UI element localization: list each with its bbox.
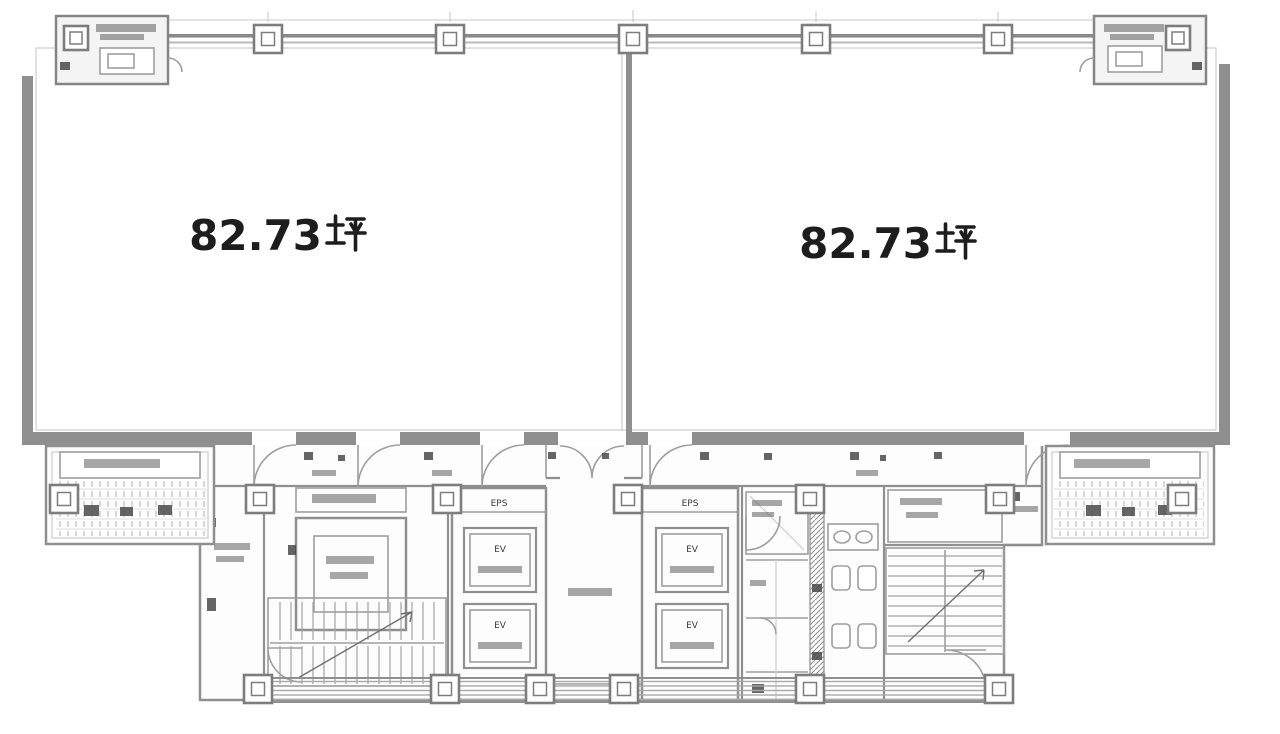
- eps-label: EPS: [491, 499, 508, 509]
- illegible-text-mark: [100, 34, 144, 40]
- illegible-text-mark: [312, 494, 376, 503]
- ev-label: EV: [494, 621, 507, 631]
- column-marker: [1168, 485, 1196, 513]
- right-wall: [1219, 64, 1230, 445]
- ev-label: EV: [494, 545, 507, 555]
- wall-step-arc: [1080, 58, 1094, 72]
- pipe-shaft: [810, 486, 824, 700]
- top-left-machine-room: [56, 16, 182, 84]
- balcony-left: [46, 446, 214, 544]
- eps-label: EPS: [682, 499, 699, 509]
- column-marker: [984, 25, 1012, 53]
- column-marker: [64, 26, 88, 50]
- floor-plan-drawing: 82.73 82.73: [0, 0, 1280, 734]
- illegible-text-mark: [752, 500, 782, 506]
- illegible-text-mark: [752, 512, 774, 517]
- sink-counter: [828, 524, 878, 550]
- illegible-text-mark: [1104, 24, 1164, 32]
- illegible-text-mark: [326, 556, 374, 564]
- illegible-text-mark: [670, 642, 714, 649]
- illegible-text-mark: [84, 459, 160, 468]
- ev-label: EV: [686, 621, 699, 631]
- column-marker: [244, 675, 272, 703]
- ev-label: EV: [686, 545, 699, 555]
- toilet-fixture: [832, 566, 850, 590]
- column-marker: [433, 485, 461, 513]
- column-marker: [986, 485, 1014, 513]
- office-room-left: 82.73: [189, 211, 365, 260]
- illegible-text-mark: [1110, 34, 1154, 40]
- toilet-fixture: [832, 624, 850, 648]
- outdoor-unit: [1122, 507, 1135, 516]
- outdoor-unit: [120, 507, 133, 516]
- toilet-fixture: [858, 624, 876, 648]
- column-marker: [796, 485, 824, 513]
- column-marker: [614, 485, 642, 513]
- left-wall: [22, 76, 33, 445]
- room-area-label: 82.73: [189, 211, 322, 260]
- balcony-right: [1046, 446, 1214, 544]
- column-marker: [50, 485, 78, 513]
- illegible-text-mark: [1012, 506, 1038, 512]
- outdoor-unit: [158, 505, 172, 515]
- tenant-divider-wall: [626, 44, 632, 432]
- floor-plan-page: 82.73 82.73: [0, 0, 1280, 734]
- column-marker: [796, 675, 824, 703]
- illegible-text-mark: [330, 572, 368, 579]
- illegible-text-mark: [906, 512, 938, 518]
- tsubo-unit-glyph: [327, 216, 365, 250]
- column-marker: [436, 25, 464, 53]
- room-area-label: 82.73: [799, 219, 932, 268]
- outdoor-unit: [84, 505, 99, 516]
- column-marker: [985, 675, 1013, 703]
- illegible-text-mark: [216, 556, 244, 562]
- column-marker: [246, 485, 274, 513]
- illegible-text-mark: [670, 566, 714, 573]
- toilet-fixture: [858, 566, 876, 590]
- column-marker: [610, 675, 638, 703]
- illegible-text-mark: [1074, 459, 1150, 468]
- column-marker: [526, 675, 554, 703]
- office-room-right: 82.73: [799, 219, 975, 268]
- illegible-text-mark: [478, 566, 522, 573]
- illegible-text-mark: [96, 24, 156, 32]
- illegible-text-mark: [214, 543, 250, 550]
- illegible-text-mark: [478, 642, 522, 649]
- column-marker: [802, 25, 830, 53]
- column-marker: [619, 25, 647, 53]
- outdoor-unit: [1086, 505, 1101, 516]
- column-marker: [1166, 26, 1190, 50]
- column-marker: [431, 675, 459, 703]
- wall-step-arc: [168, 58, 182, 72]
- column-marker: [254, 25, 282, 53]
- tsubo-unit-glyph: [937, 224, 975, 258]
- illegible-text-mark: [900, 498, 942, 505]
- illegible-text-mark: [568, 588, 612, 596]
- top-right-machine-room: [1080, 16, 1206, 84]
